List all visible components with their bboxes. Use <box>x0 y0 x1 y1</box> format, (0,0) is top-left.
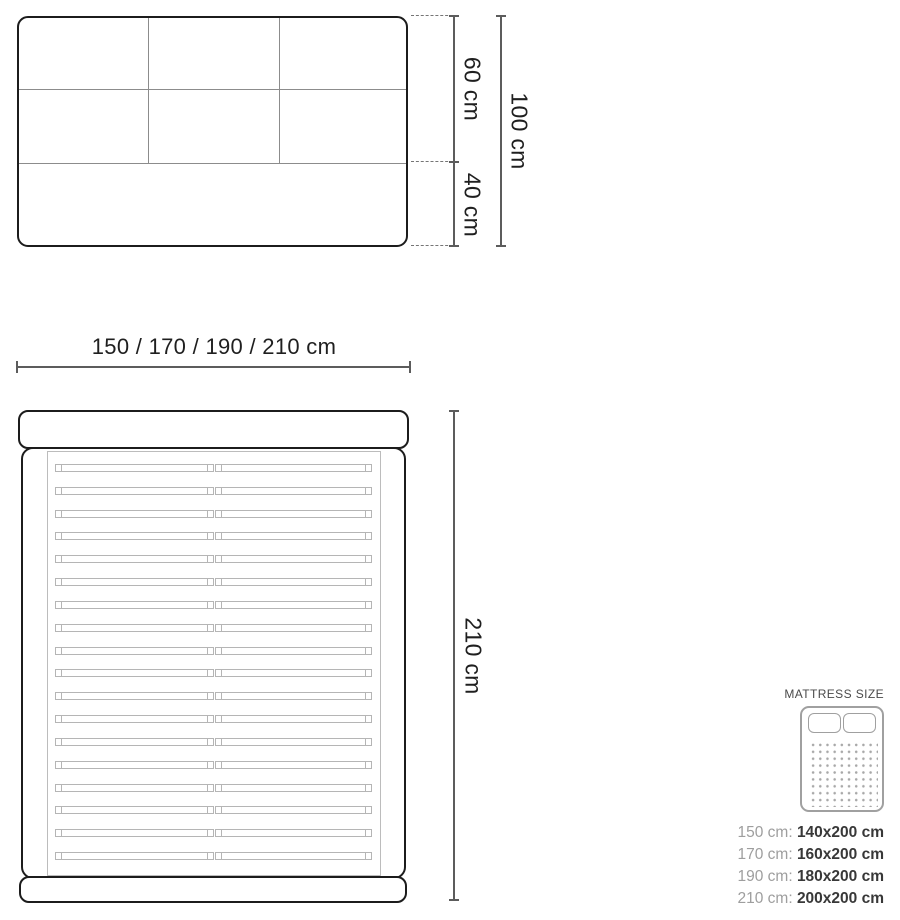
bed-slat <box>55 578 214 586</box>
bed-slat <box>55 487 214 495</box>
bed-slat <box>215 806 372 814</box>
dimension-tick <box>449 161 459 163</box>
headboard-seam-line <box>19 163 406 164</box>
bed-slat <box>55 715 214 723</box>
bed-slat <box>215 487 372 495</box>
dimension-tick <box>449 245 459 247</box>
height-split-dimension-line <box>453 16 455 247</box>
dimension-tick <box>449 410 459 412</box>
bed-slat <box>215 510 372 518</box>
headboard-front-view <box>17 16 408 247</box>
bed-slat <box>215 624 372 632</box>
frame-size-label: 210 cm: <box>737 890 792 907</box>
bed-slat <box>55 852 214 860</box>
mattress-size-table: 150 cm: 140x200 cm 170 cm: 160x200 cm 19… <box>737 822 884 910</box>
bed-slat <box>55 806 214 814</box>
pillow-icon <box>843 713 876 733</box>
extension-dash-top <box>411 15 453 16</box>
dimension-tick <box>496 15 506 17</box>
mattress-size-row: 210 cm: 200x200 cm <box>737 888 884 910</box>
pillow-icon <box>808 713 841 733</box>
mattress-size-row: 190 cm: 180x200 cm <box>737 866 884 888</box>
mattress-size-legend-title: MATTRESS SIZE <box>784 687 884 701</box>
width-dimension-line <box>17 366 410 368</box>
bed-slat <box>55 647 214 655</box>
bed-slat <box>215 829 372 837</box>
dimension-tick <box>409 361 411 373</box>
dimension-tick <box>449 899 459 901</box>
bed-slat <box>215 784 372 792</box>
frame-size-label: 190 cm: <box>737 868 792 885</box>
mattress-size-value: 140x200 cm <box>797 824 884 841</box>
mattress-size-row: 170 cm: 160x200 cm <box>737 844 884 866</box>
dimension-tick <box>16 361 18 373</box>
bed-slat <box>55 601 214 609</box>
bed-slat <box>215 738 372 746</box>
bed-slat <box>215 647 372 655</box>
bed-slat <box>55 829 214 837</box>
bed-slat <box>55 761 214 769</box>
bed-slat <box>215 532 372 540</box>
bed-slat <box>215 464 372 472</box>
extension-dash-middle <box>411 161 453 162</box>
headboard-seam-line <box>279 18 280 164</box>
mattress-size-value: 200x200 cm <box>797 890 884 907</box>
mattress-size-value: 160x200 cm <box>797 846 884 863</box>
bed-dimensions-diagram: 60 cm 40 cm 100 cm 150 / 170 / 190 / 210… <box>0 0 900 920</box>
headboard-upper-height-label: 60 cm <box>459 57 486 121</box>
headboard-seam-line <box>19 89 406 90</box>
bed-slat <box>55 692 214 700</box>
bed-slat <box>215 578 372 586</box>
mattress-icon <box>800 706 884 812</box>
length-dimension-line <box>453 411 455 901</box>
bed-slat <box>55 510 214 518</box>
bed-slat <box>55 624 214 632</box>
bed-slat <box>215 761 372 769</box>
bed-footer-top-view <box>19 876 407 903</box>
bed-slat <box>55 555 214 563</box>
frame-size-label: 150 cm: <box>737 824 792 841</box>
mattress-size-value: 180x200 cm <box>797 868 884 885</box>
dimension-tick <box>496 245 506 247</box>
bed-length-label: 210 cm <box>460 617 487 694</box>
bed-slat <box>215 601 372 609</box>
bed-slat <box>55 738 214 746</box>
bed-slat <box>55 669 214 677</box>
bed-headboard-top-view <box>18 410 409 449</box>
headboard-total-height-label: 100 cm <box>506 92 533 169</box>
bed-slat <box>55 532 214 540</box>
extension-dash-bottom <box>411 245 453 246</box>
total-height-dimension-line <box>500 16 502 247</box>
frame-size-label: 170 cm: <box>737 846 792 863</box>
bed-slat <box>215 555 372 563</box>
bed-slat <box>55 464 214 472</box>
headboard-seam-line <box>148 18 149 164</box>
bed-slat <box>215 669 372 677</box>
bed-slat <box>215 715 372 723</box>
dimension-tick <box>449 15 459 17</box>
bed-slat <box>55 784 214 792</box>
bed-slat <box>215 852 372 860</box>
mattress-tufting-dots <box>808 740 878 807</box>
bed-width-label: 150 / 170 / 190 / 210 cm <box>92 334 336 360</box>
headboard-lower-height-label: 40 cm <box>459 173 486 237</box>
mattress-size-row: 150 cm: 140x200 cm <box>737 822 884 844</box>
bed-slat <box>215 692 372 700</box>
